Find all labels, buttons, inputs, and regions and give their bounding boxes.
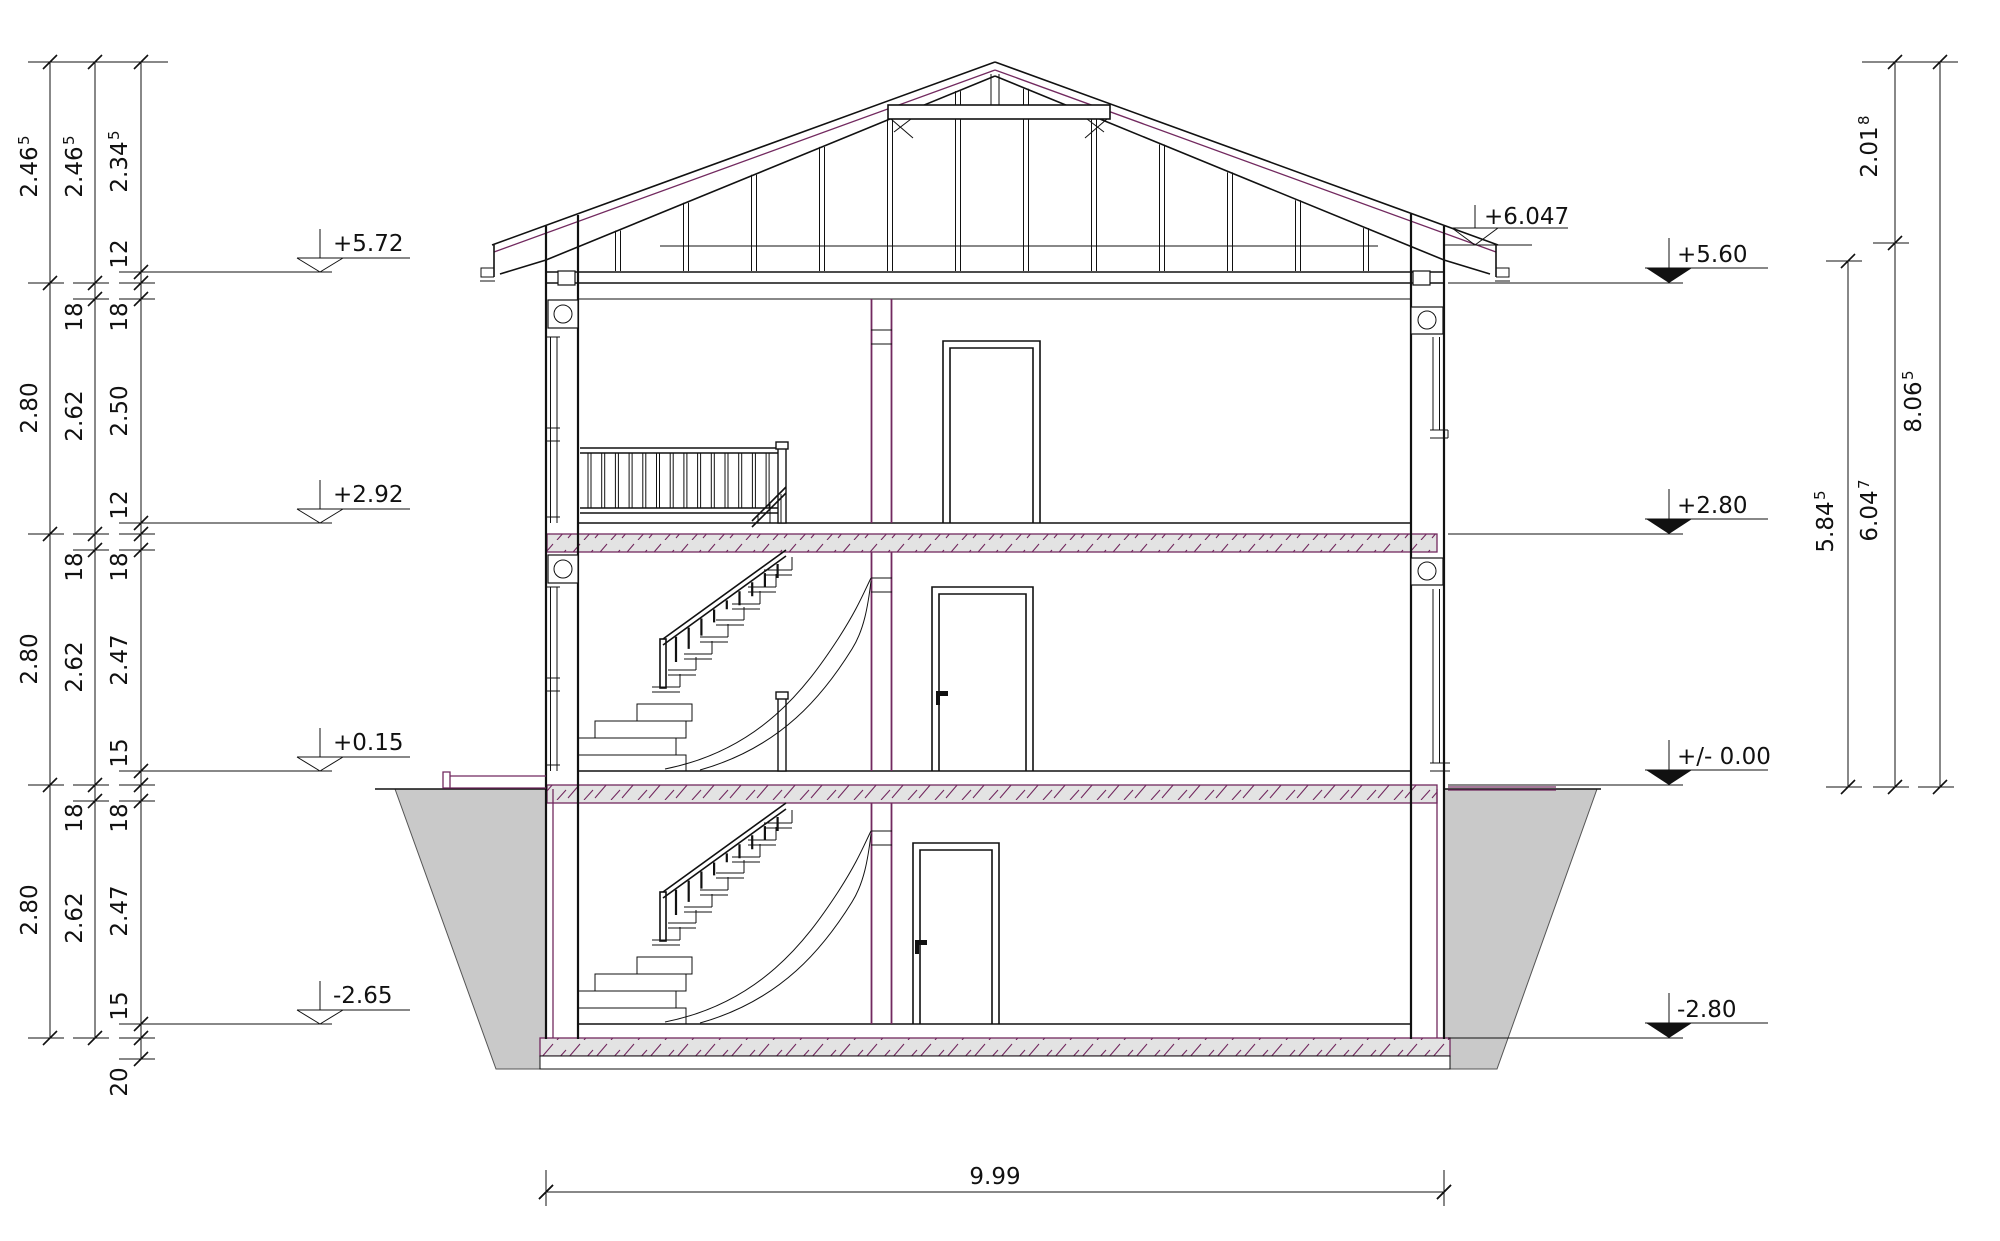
dim-label: 15 bbox=[107, 991, 133, 1020]
roof bbox=[480, 62, 1510, 281]
door-basement bbox=[913, 843, 999, 1024]
dim-label: 2.46 bbox=[17, 146, 43, 197]
dim-label: 12 bbox=[107, 490, 133, 519]
dim-label: 18 bbox=[107, 552, 133, 581]
door-lintels bbox=[871, 330, 892, 845]
dim-label: 18 bbox=[62, 552, 88, 581]
dim-label: 2.80 bbox=[17, 633, 43, 684]
level-text: +5.72 bbox=[333, 231, 403, 257]
earth-fill bbox=[395, 789, 1597, 1069]
door-handle-ground bbox=[936, 691, 948, 705]
dim-label: 2.46 bbox=[62, 146, 88, 197]
railing-upper bbox=[580, 442, 788, 527]
dim-label: 8.06 bbox=[1901, 381, 1927, 432]
dim-label: 2.50 bbox=[107, 385, 133, 436]
dimension-labels: 2.465 2.80 2.80 2.80 2.465 18 2.62 18 2.… bbox=[15, 115, 1927, 1096]
dim-label: 2.34 bbox=[107, 141, 133, 192]
svg-text:5: 5 bbox=[60, 135, 78, 145]
dim-label: 2.47 bbox=[107, 885, 133, 936]
floor-slabs bbox=[540, 534, 1450, 1069]
door-handle-basement bbox=[915, 940, 927, 954]
dim-label: 6.04 bbox=[1857, 490, 1883, 541]
partitions bbox=[871, 299, 892, 1024]
level-text: +/- 0.00 bbox=[1677, 744, 1771, 770]
dim-label: 2.62 bbox=[62, 641, 88, 692]
dim-label: 18 bbox=[107, 302, 133, 331]
width-dimension: 9.99 bbox=[539, 1164, 1451, 1206]
dim-label: 18 bbox=[62, 803, 88, 832]
dim-label: 12 bbox=[107, 239, 133, 268]
collar-beam bbox=[888, 74, 1110, 138]
porch-left bbox=[443, 772, 546, 788]
gutter-detail bbox=[480, 268, 1510, 281]
dim-label: 5.84 bbox=[1813, 501, 1839, 552]
svg-text:5: 5 bbox=[1899, 370, 1917, 380]
level-markers-left: +5.72 +2.92 +0.15 -2.65 bbox=[333, 231, 403, 1009]
door-ground-floor bbox=[932, 587, 1033, 771]
section-drawing: +5.72 +2.92 +0.15 -2.65 +5.60 +2.80 +/- … bbox=[0, 0, 2000, 1241]
building-section-sheet: +5.72 +2.92 +0.15 -2.65 +5.60 +2.80 +/- … bbox=[0, 0, 2000, 1241]
dim-label: 2.62 bbox=[62, 892, 88, 943]
dim-label: 2.47 bbox=[107, 634, 133, 685]
svg-text:5: 5 bbox=[1811, 490, 1829, 500]
level-text: -2.80 bbox=[1677, 997, 1737, 1023]
svg-text:+6.047: +6.047 bbox=[1484, 204, 1569, 230]
dim-label: 2.80 bbox=[17, 884, 43, 935]
level-text: +5.60 bbox=[1677, 242, 1747, 268]
level-text: +2.92 bbox=[333, 482, 403, 508]
floor-lines bbox=[546, 271, 1444, 1024]
doors bbox=[913, 341, 1040, 1024]
dim-label: 20 bbox=[107, 1067, 133, 1096]
purlin-left bbox=[558, 271, 575, 285]
svg-text:5: 5 bbox=[105, 130, 123, 140]
level-text: +0.15 bbox=[333, 730, 403, 756]
dim-label: 2.01 bbox=[1857, 126, 1883, 177]
level-marker-eave: +6.047 bbox=[1444, 204, 1569, 245]
dim-label: 15 bbox=[107, 738, 133, 767]
stair-basement bbox=[578, 803, 871, 1024]
dimension-chains bbox=[30, 62, 1958, 1059]
svg-text:8: 8 bbox=[1855, 115, 1873, 125]
railing-post-ground bbox=[776, 692, 788, 771]
dim-label: 18 bbox=[107, 803, 133, 832]
dim-label: 2.62 bbox=[62, 390, 88, 441]
level-text: -2.65 bbox=[333, 983, 393, 1009]
level-text: +2.80 bbox=[1677, 493, 1747, 519]
svg-text:5: 5 bbox=[15, 135, 33, 145]
dim-label: 2.80 bbox=[17, 382, 43, 433]
svg-text:7: 7 bbox=[1855, 479, 1873, 489]
door-upper-floor bbox=[943, 341, 1040, 523]
stair-ground-floor bbox=[578, 550, 871, 771]
dim-label: 18 bbox=[62, 302, 88, 331]
purlin-right bbox=[1413, 271, 1430, 285]
width-label: 9.99 bbox=[969, 1164, 1020, 1190]
